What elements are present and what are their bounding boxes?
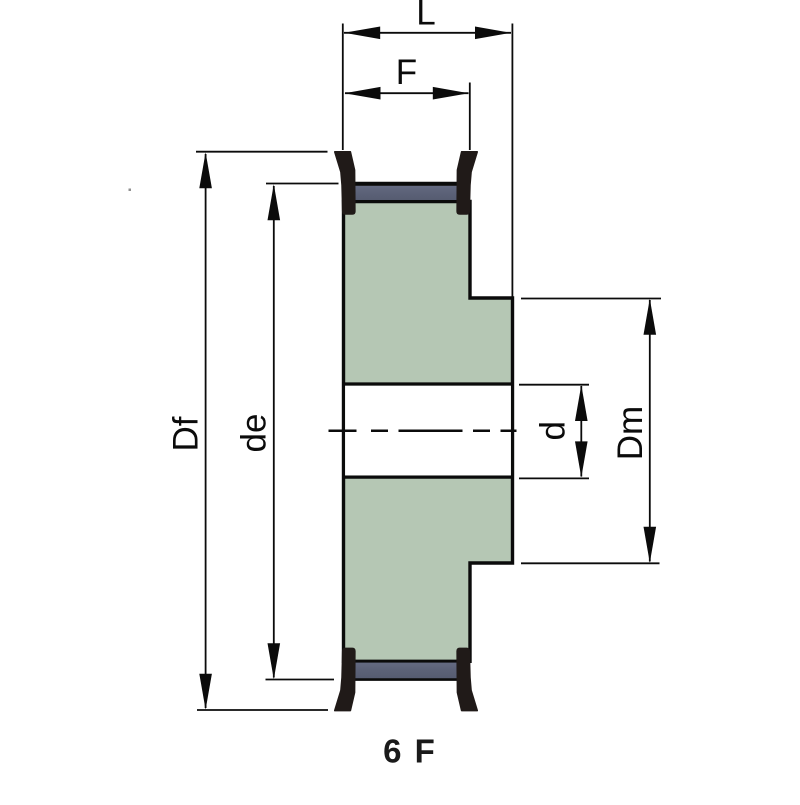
svg-text:de: de xyxy=(235,414,274,453)
svg-text:F: F xyxy=(396,53,417,92)
svg-text:Df: Df xyxy=(167,416,206,451)
svg-text:L: L xyxy=(416,0,435,33)
svg-text:6 F: 6 F xyxy=(383,733,437,770)
svg-text:d: d xyxy=(534,421,573,440)
svg-text:Dm: Dm xyxy=(611,406,650,460)
